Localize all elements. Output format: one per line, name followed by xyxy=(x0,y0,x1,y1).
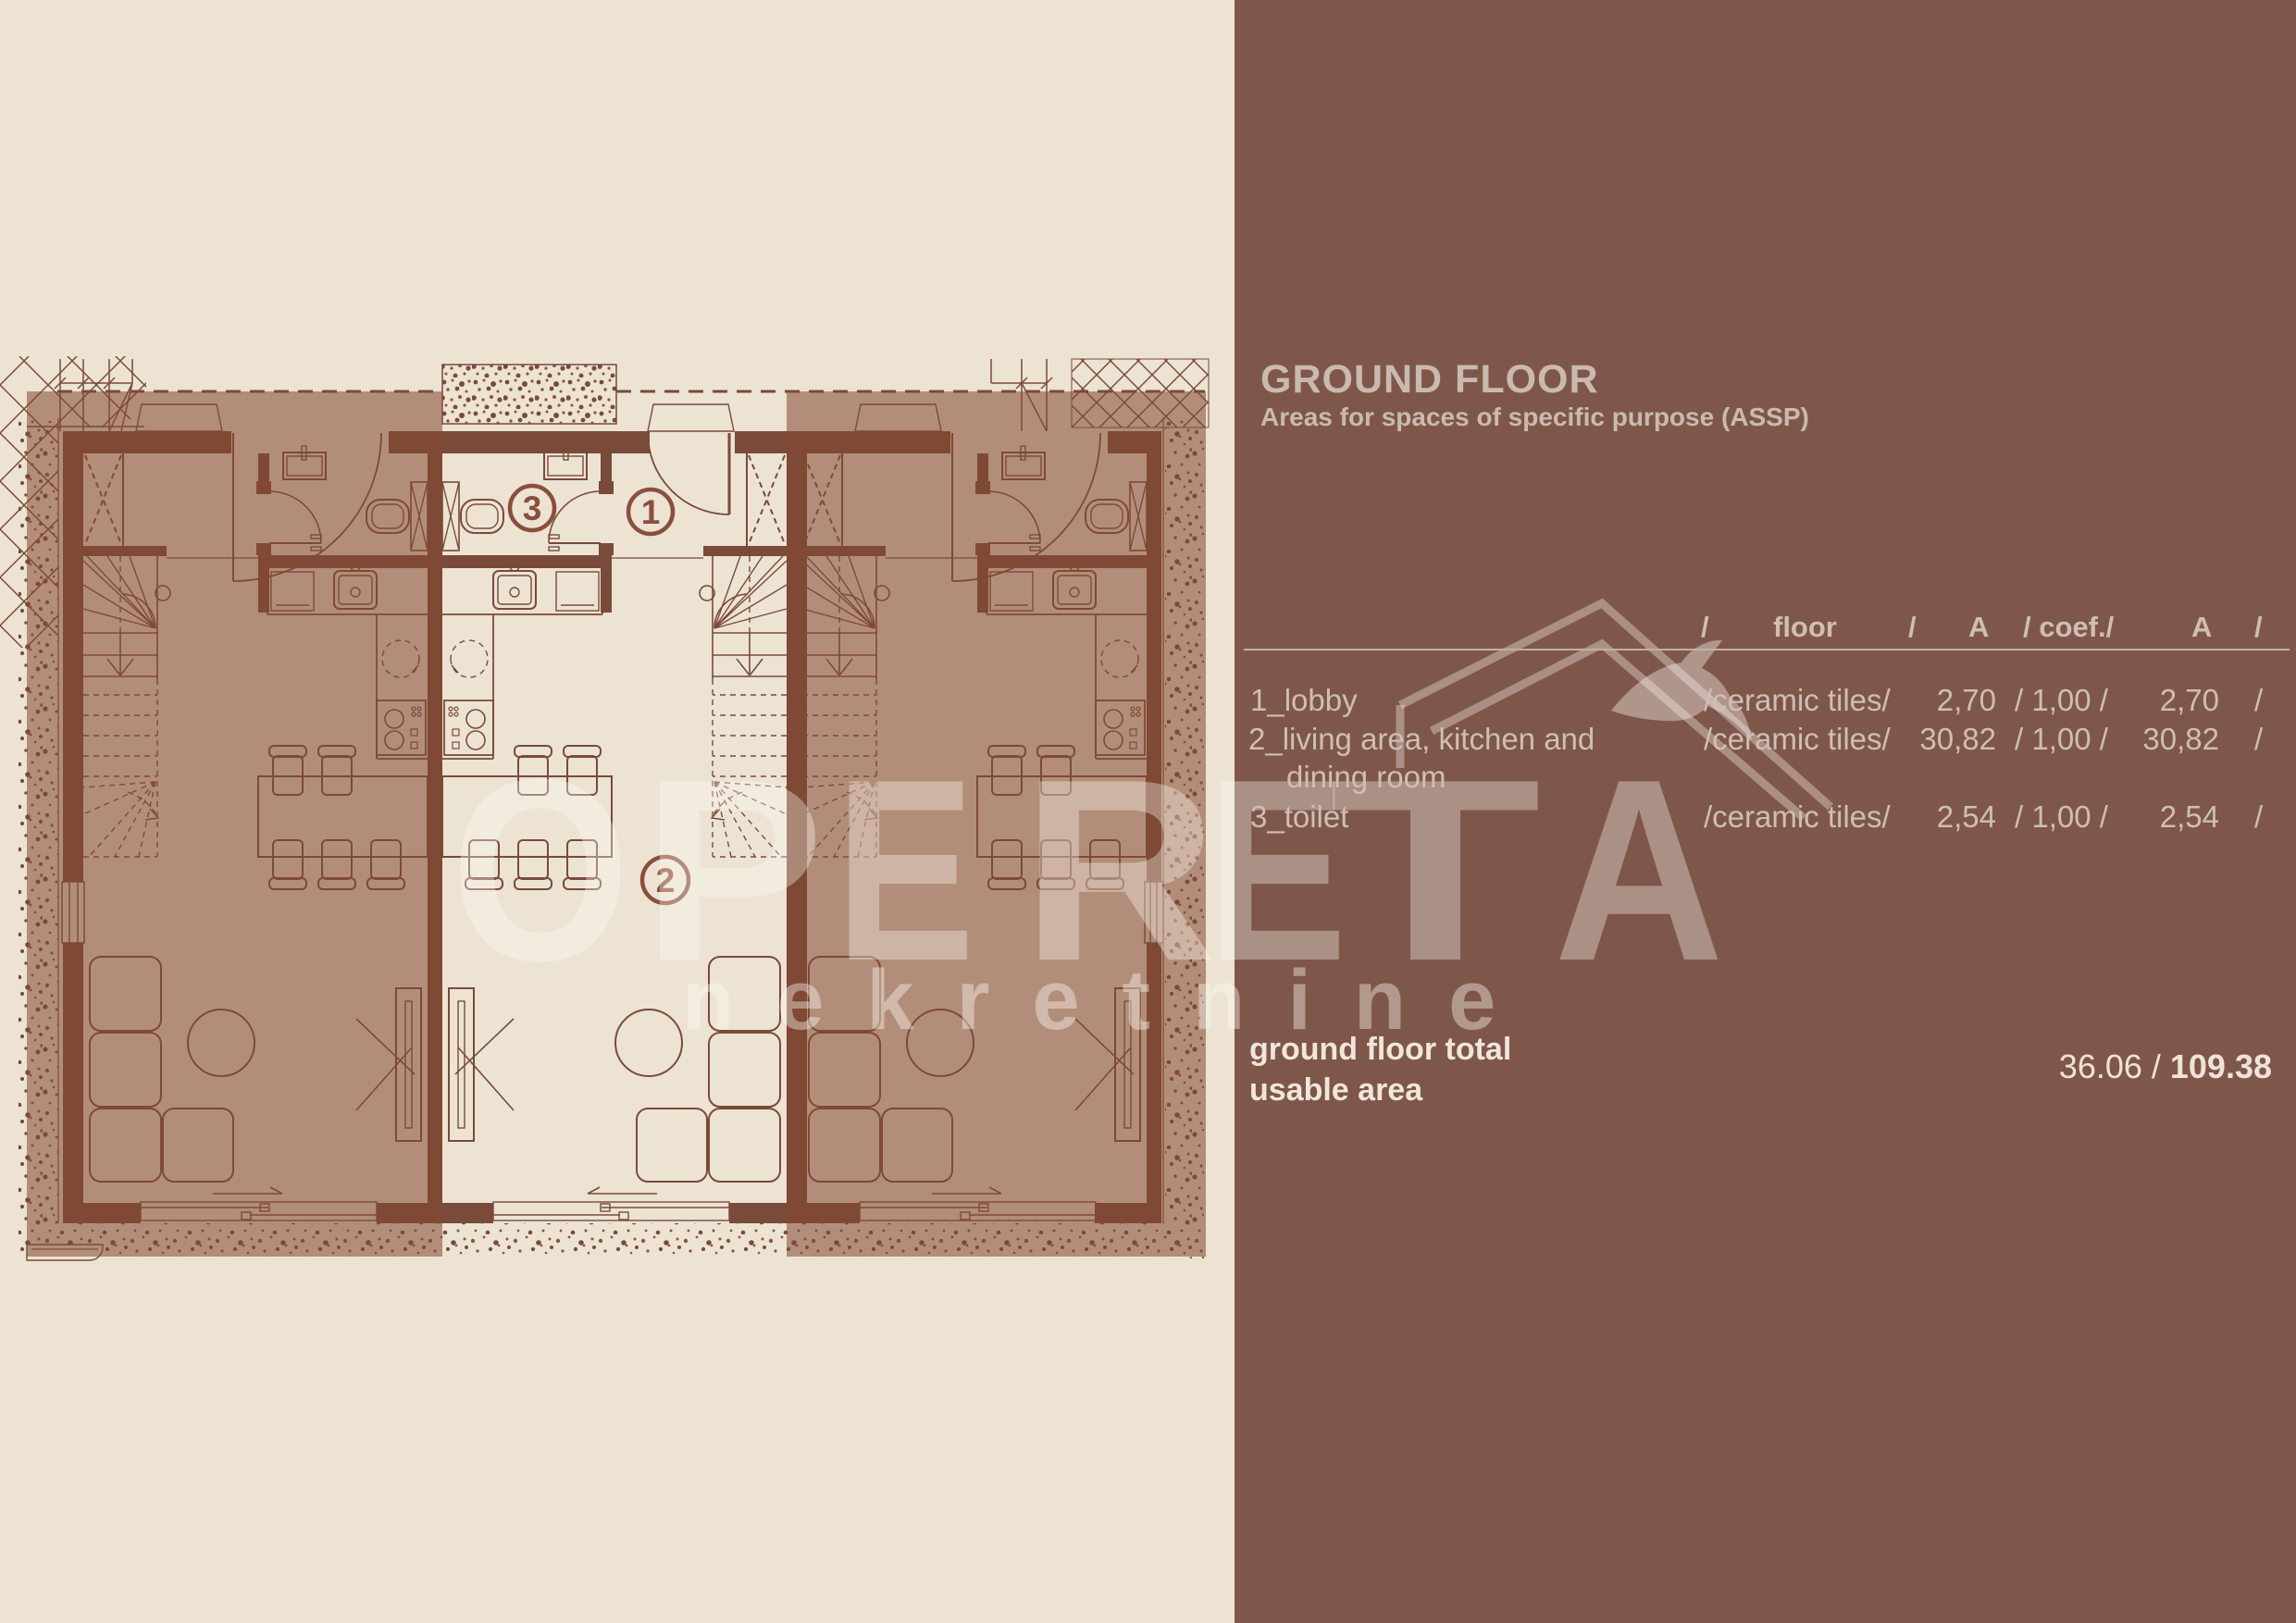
svg-text:3: 3 xyxy=(523,489,542,527)
svg-text:1: 1 xyxy=(641,493,661,531)
svg-text:O: O xyxy=(451,726,630,1016)
svg-text:A: A xyxy=(1554,725,1724,1015)
